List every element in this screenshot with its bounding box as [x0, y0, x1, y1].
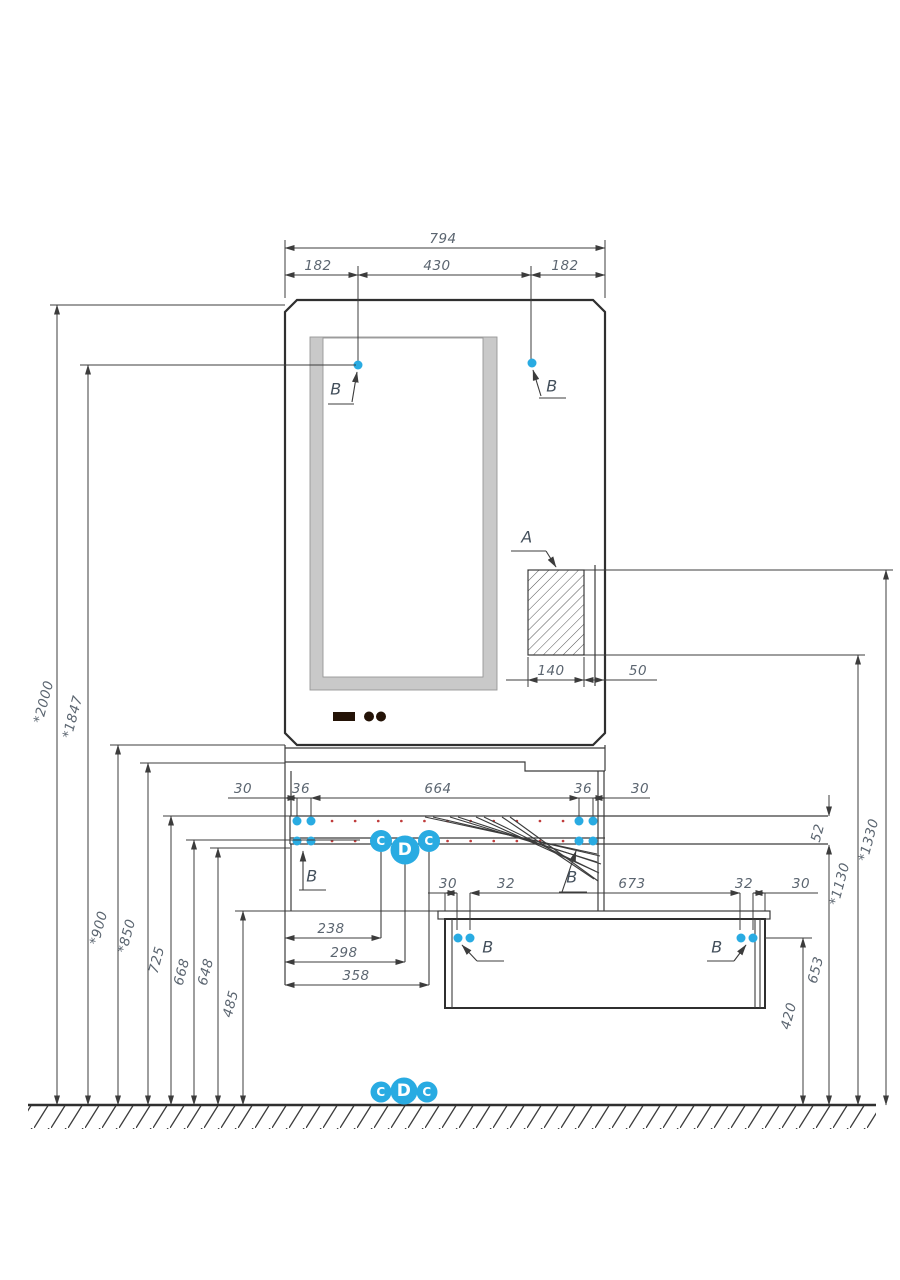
callout-c-floor-left: C — [376, 1085, 385, 1099]
dim-overall-width: 794 — [429, 231, 456, 247]
ground-line — [28, 1105, 876, 1129]
dim-shelf-36-right: 36 — [574, 781, 592, 797]
dim-shelf-30-left: 30 — [234, 781, 252, 797]
callout-c-top-left: C — [376, 834, 385, 848]
drawing-canvas — [0, 0, 900, 1280]
dim-cab-30-left: 30 — [439, 876, 457, 892]
dim-shelf-36-left: 36 — [292, 781, 310, 797]
dim-cab-32-left: 32 — [497, 876, 515, 892]
dim-cab-30-right: 30 — [792, 876, 810, 892]
technical-drawing: 794 182 430 182 A 140 50 B B B B B B 30 … — [0, 0, 900, 1280]
callout-d-top: D — [398, 840, 413, 860]
dim-offset-298: 298 — [330, 945, 357, 961]
dim-offset-358: 358 — [342, 968, 369, 984]
dim-right-offset: 182 — [551, 258, 578, 274]
dim-cab-32-right: 32 — [735, 876, 753, 892]
callout-a: A — [521, 528, 532, 547]
callout-d-floor: D — [397, 1081, 412, 1101]
callout-b-mirror-left: B — [330, 380, 341, 399]
dim-section-width: 140 — [537, 663, 564, 679]
dim-shelf-30-right: 30 — [631, 781, 649, 797]
dim-cab-673: 673 — [618, 876, 645, 892]
dim-center-span: 430 — [423, 258, 450, 274]
lower-cabinet — [438, 911, 770, 1008]
dim-offset-238: 238 — [317, 921, 344, 937]
callout-b-panel-left: B — [306, 867, 317, 886]
callout-b-panel-right: B — [566, 868, 577, 887]
dim-section-gap: 50 — [629, 663, 647, 679]
callout-c-floor-right: C — [422, 1085, 431, 1099]
callout-b-cabinet-left: B — [482, 938, 493, 957]
callout-b-cabinet-right: B — [711, 938, 722, 957]
callout-b-mirror-right: B — [546, 377, 557, 396]
dim-shelf-664: 664 — [424, 781, 451, 797]
dim-left-offset: 182 — [304, 258, 331, 274]
callout-c-top-right: C — [424, 834, 433, 848]
